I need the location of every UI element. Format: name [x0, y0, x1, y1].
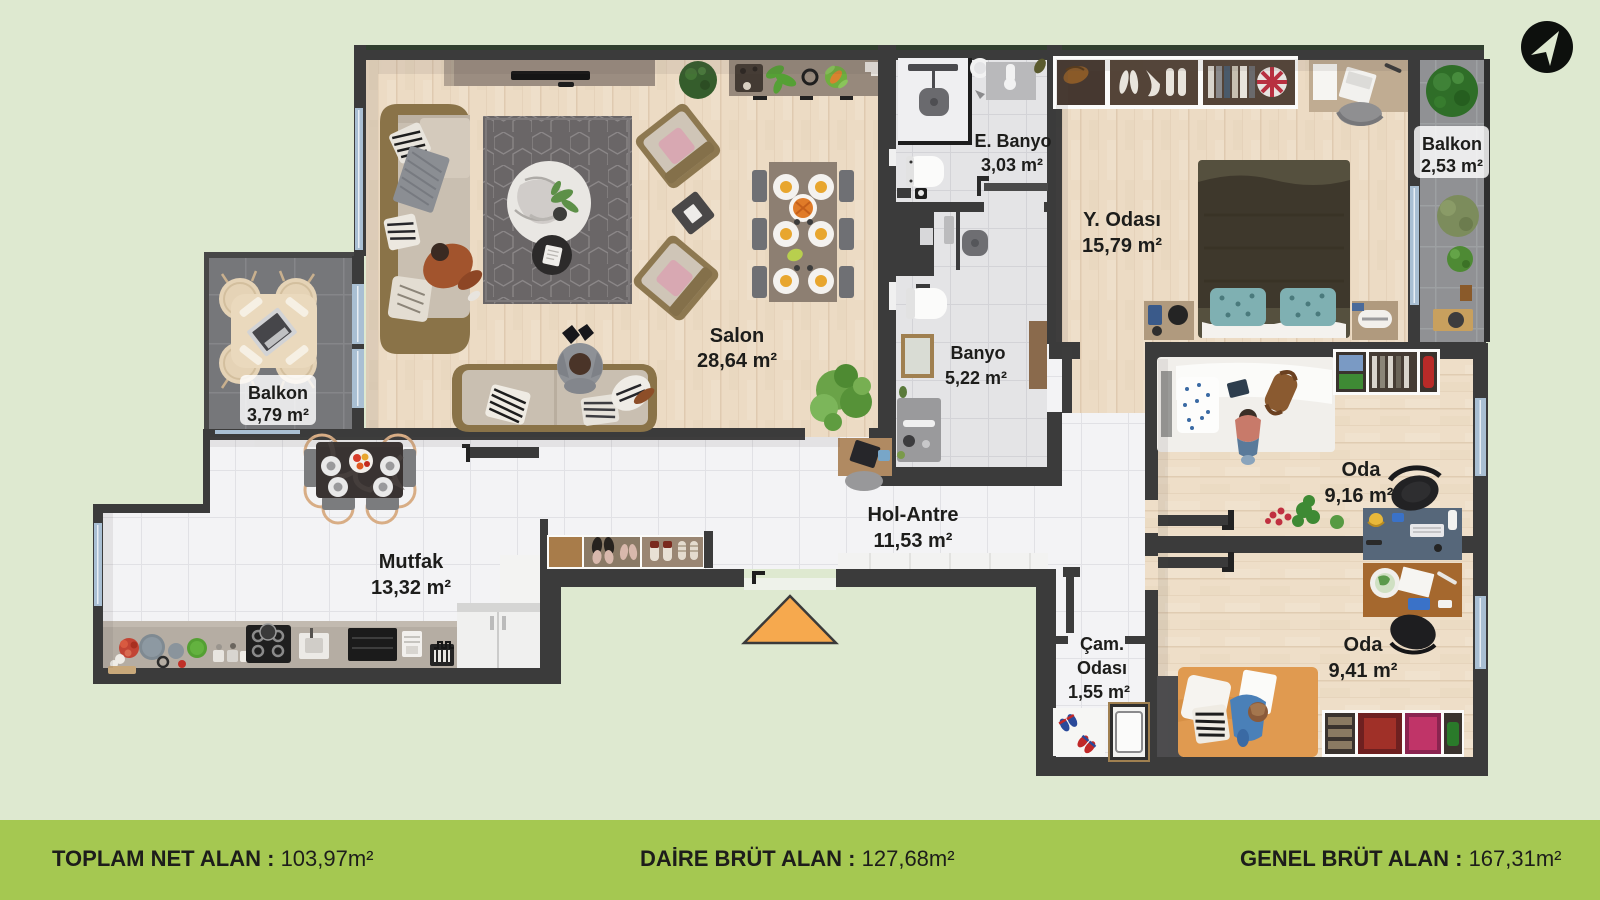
- svg-text:GENEL BRÜT ALAN : 167,31m²: GENEL BRÜT ALAN : 167,31m²: [1240, 846, 1562, 871]
- svg-text:Odası: Odası: [1077, 658, 1127, 678]
- svg-text:TOPLAM NET ALAN : 103,97m²: TOPLAM NET ALAN : 103,97m²: [52, 846, 374, 871]
- svg-text:15,79 m²: 15,79 m²: [1082, 235, 1162, 257]
- svg-text:Hol-Antre: Hol-Antre: [867, 504, 958, 526]
- svg-text:9,16 m²: 9,16 m²: [1325, 485, 1394, 507]
- svg-text:28,64 m²: 28,64 m²: [697, 350, 777, 372]
- svg-text:Çam.: Çam.: [1080, 634, 1124, 654]
- svg-text:DAİRE BRÜT ALAN : 127,68m²: DAİRE BRÜT ALAN : 127,68m²: [640, 846, 955, 871]
- svg-text:Oda: Oda: [1342, 459, 1382, 481]
- svg-text:Oda: Oda: [1344, 634, 1384, 656]
- svg-text:1,55 m²: 1,55 m²: [1068, 682, 1130, 702]
- svg-text:5,22 m²: 5,22 m²: [945, 368, 1007, 388]
- svg-text:3,03 m²: 3,03 m²: [981, 155, 1043, 175]
- svg-text:Mutfak: Mutfak: [379, 551, 444, 573]
- svg-text:Salon: Salon: [710, 325, 764, 347]
- svg-text:Balkon: Balkon: [248, 383, 308, 403]
- svg-text:9,41 m²: 9,41 m²: [1329, 660, 1398, 682]
- svg-text:Y. Odası: Y. Odası: [1083, 209, 1161, 231]
- svg-text:2,53 m²: 2,53 m²: [1421, 156, 1483, 176]
- svg-text:3,79 m²: 3,79 m²: [247, 405, 309, 425]
- svg-text:Balkon: Balkon: [1422, 134, 1482, 154]
- svg-text:13,32 m²: 13,32 m²: [371, 577, 451, 599]
- svg-text:E. Banyo: E. Banyo: [974, 131, 1051, 151]
- svg-text:11,53 m²: 11,53 m²: [874, 530, 953, 552]
- svg-text:Banyo: Banyo: [950, 343, 1005, 363]
